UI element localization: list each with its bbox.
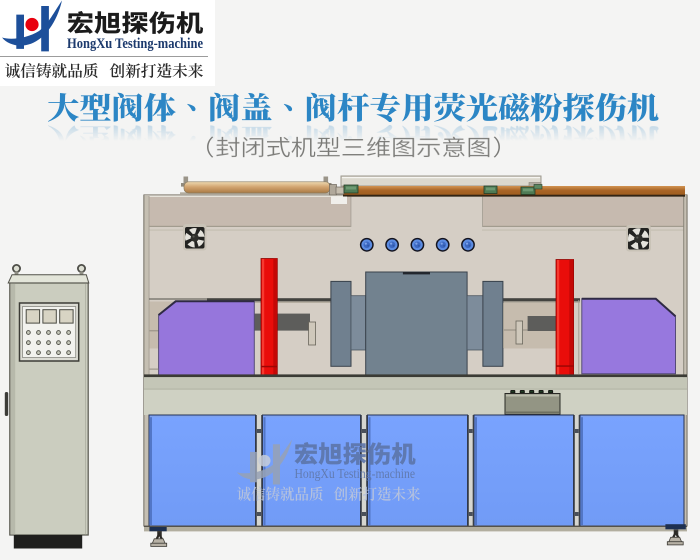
svg-text:HongXu Testing-machine: HongXu Testing-machine	[67, 36, 203, 52]
svg-text:HongXu Testing-machine: HongXu Testing-machine	[295, 466, 416, 481]
